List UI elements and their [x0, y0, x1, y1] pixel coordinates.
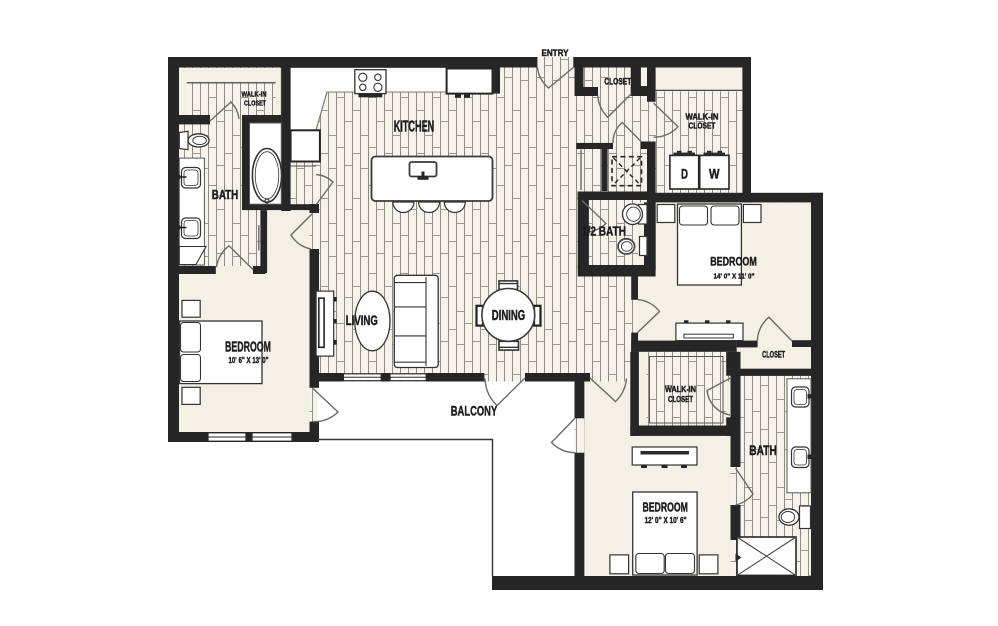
svg-text:BEDROOM: BEDROOM — [225, 339, 271, 356]
svg-text:CLOSET: CLOSET — [668, 394, 694, 404]
svg-text:BATH: BATH — [749, 443, 777, 459]
svg-text:10' 6" X 13' 0": 10' 6" X 13' 0" — [229, 355, 269, 365]
svg-text:CLOSET: CLOSET — [604, 77, 631, 88]
svg-text:BATH: BATH — [212, 187, 239, 202]
svg-text:ENTRY: ENTRY — [542, 48, 570, 59]
svg-text:WALK-IN: WALK-IN — [242, 90, 267, 99]
svg-text:W: W — [709, 166, 720, 182]
svg-text:WALK-IN: WALK-IN — [665, 384, 696, 394]
svg-text:D: D — [681, 166, 688, 182]
svg-text:1/2 BATH: 1/2 BATH — [582, 224, 626, 239]
svg-text:LIVING: LIVING — [346, 313, 378, 328]
svg-text:CLOSET: CLOSET — [244, 99, 266, 108]
svg-text:BALCONY: BALCONY — [451, 403, 498, 419]
svg-text:CLOSET: CLOSET — [689, 121, 717, 131]
svg-text:12' 0" X 10' 6": 12' 0" X 10' 6" — [645, 515, 687, 525]
svg-text:BEDROOM: BEDROOM — [710, 255, 757, 269]
svg-text:BEDROOM: BEDROOM — [642, 500, 688, 515]
svg-text:DINING: DINING — [492, 308, 526, 324]
svg-text:KITCHEN: KITCHEN — [394, 119, 435, 136]
svg-text:CLOSET: CLOSET — [762, 349, 785, 360]
svg-text:14' 0" X 11' 0": 14' 0" X 11' 0" — [714, 272, 755, 281]
